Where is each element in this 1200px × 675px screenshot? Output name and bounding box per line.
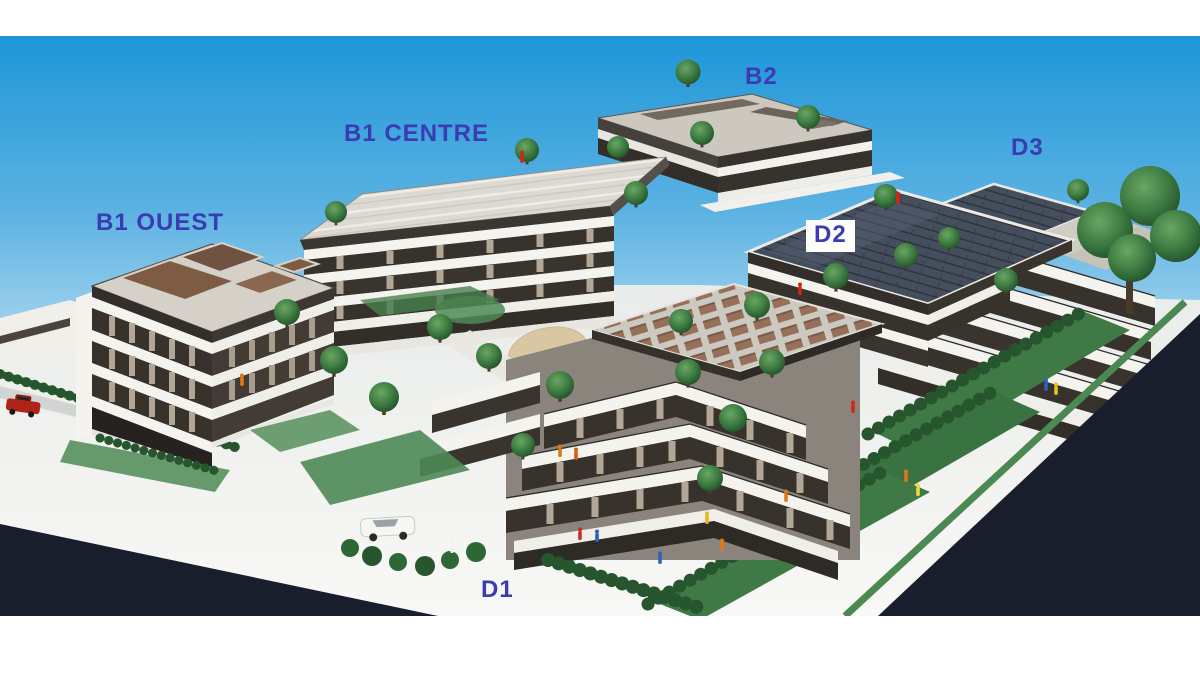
label-d3: D3: [1011, 134, 1044, 162]
page-margin-bottom: [0, 616, 1200, 675]
label-b1-centre: B1 CENTRE: [344, 120, 489, 148]
label-b1-ouest: B1 OUEST: [96, 209, 224, 237]
label-d2: D2: [806, 220, 855, 252]
label-d1: D1: [481, 576, 514, 604]
label-b2: B2: [745, 63, 778, 91]
model-photo: B1 OUEST B1 CENTRE B2 D3 D2 D1: [0, 0, 1200, 675]
page-margin-top: [0, 0, 1200, 36]
model-scene: [0, 0, 1200, 675]
